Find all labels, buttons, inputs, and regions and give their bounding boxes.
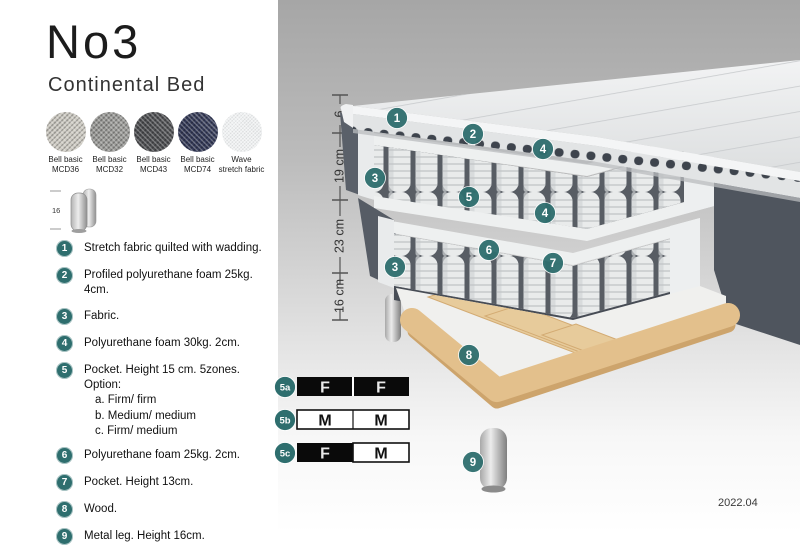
legend-number-badge: 1 [56,240,73,257]
version-date: 2022.04 [718,497,758,509]
marker-4b: 4 [535,203,556,224]
legend-number-badge: 9 [56,528,73,545]
firmness-value: F [320,446,330,463]
firmness-value: M [374,413,387,430]
svg-text:2: 2 [470,129,476,141]
fabric-swatch: Bell basicMCD74 [177,112,218,174]
svg-text:8: 8 [466,350,473,362]
middle-frame-left-post [358,128,374,200]
swatch-label-line1: Bell basic [92,155,126,164]
firmness-table: 5a F F 5b M M 5c [275,377,410,464]
swatch-label-line2: MCD36 [52,165,79,174]
swatch-label-line1: Bell basic [136,155,170,164]
firmness-value: F [376,380,386,397]
legend-text: Polyurethane foam 25kg. 2cm. [84,447,240,463]
marker-2: 2 [463,124,484,145]
svg-text:4: 4 [542,208,549,220]
firmness-row-5c: 5c F M [275,443,410,464]
swatch-label-line1: Wave [231,155,251,164]
component-legend: 1 Stretch fabric quilted with wadding. 2… [56,240,271,555]
firmness-value: M [318,413,331,430]
leg-height-icon: 16 [44,184,114,236]
legend-number-badge: 8 [56,501,73,518]
bed-cutaway-illustration: 6 19 cm 23 cm 16 cm [278,0,800,533]
swatch-label-line1: Bell basic [180,155,214,164]
marker-1: 1 [387,108,408,129]
legend-option-c: c. Firm/ medium [95,425,271,439]
fabric-swatch: Bell basicMCD32 [89,112,130,174]
fabric-swatch-circle [178,112,218,152]
legend-item-8: 8 Wood. [56,501,271,518]
swatch-label-line2: MCD74 [184,165,211,174]
firmness-row-id: 5b [279,416,290,427]
firmness-row-5b: 5b M M [275,410,410,431]
legend-item-1: 1 Stretch fabric quilted with wadding. [56,240,271,257]
dim-lower-layer: 23 cm [332,219,346,253]
fabric-swatch: Bell basicMCD43 [133,112,174,174]
bed-cutaway-panel: 6 19 cm 23 cm 16 cm [278,0,800,533]
svg-text:1: 1 [394,113,401,125]
legend-number-badge: 5 [56,362,73,379]
legend-number-badge: 4 [56,335,73,352]
legend-option-b: b. Medium/ medium [95,410,271,424]
legend-number-badge: 7 [56,474,73,491]
leg-base [72,229,87,233]
fabric-swatch-circle [134,112,174,152]
legend-text: Wood. [84,501,117,517]
leg-height-value: 16 [52,206,60,215]
legend-text: Stretch fabric quilted with wadding. [84,240,262,256]
fabric-swatch-circle [222,112,262,152]
spec-sheet: No3 Continental Bed Bell basicMCD36 Bell… [0,0,800,533]
svg-text:9: 9 [470,457,476,469]
fabric-swatch-row: Bell basicMCD36 Bell basicMCD32 Bell bas… [45,112,262,174]
swatch-label-line2: stretch fabric [219,165,265,174]
legend-item-2: 2 Profiled polyurethane foam 25kg. 4cm. [56,267,271,298]
firmness-value: F [320,380,330,397]
fabric-swatch: Wavestretch fabric [221,112,262,174]
legend-item-5: 5 Pocket. Height 15 cm. 5zones. Option: [56,362,271,393]
legend-item-7: 7 Pocket. Height 13cm. [56,474,271,491]
fabric-swatch: Bell basicMCD36 [45,112,86,174]
marker-9: 9 [463,452,484,473]
legend-text: Pocket. Height 13cm. [84,474,193,490]
svg-text:7: 7 [550,258,556,270]
svg-text:3: 3 [372,173,378,185]
marker-3a: 3 [365,168,386,189]
swatch-label-line2: MCD43 [140,165,167,174]
metal-leg-front [480,428,507,490]
marker-5: 5 [459,187,480,208]
legend-item-9: 9 Metal leg. Height 16cm. [56,528,271,545]
legend-item-6: 6 Polyurethane foam 25kg. 2cm. [56,447,271,464]
page-title: No3 [46,14,141,69]
legend-number-badge: 2 [56,267,73,284]
firmness-value: M [374,446,387,463]
marker-4a: 4 [533,139,554,160]
legend-item-3: 3 Fabric. [56,308,271,325]
marker-7: 7 [543,253,564,274]
legend-number-badge: 6 [56,447,73,464]
legend-text: Pocket. Height 15 cm. 5zones. Option: [84,362,271,393]
swatch-label-line2: MCD32 [96,165,123,174]
svg-text:5: 5 [466,192,473,204]
svg-text:3: 3 [392,262,398,274]
marker-8: 8 [459,345,480,366]
legend-number-badge: 3 [56,308,73,325]
metal-leg-left [385,294,401,342]
legend-text: Fabric. [84,308,119,324]
svg-text:4: 4 [540,144,547,156]
legend-option-a: a. Firm/ firm [95,394,271,408]
dim-leg-height: 16 cm [332,279,346,313]
metal-leg-front [71,193,87,231]
svg-text:6: 6 [486,245,492,257]
legend-item-4: 4 Polyurethane foam 30kg. 2cm. [56,335,271,352]
marker-6: 6 [479,240,500,261]
fabric-swatch-circle [46,112,86,152]
firmness-row-id: 5c [280,449,291,460]
legend-text: Profiled polyurethane foam 25kg. 4cm. [84,267,271,298]
legend-text: Polyurethane foam 30kg. 2cm. [84,335,240,351]
firmness-row-5a: 5a F F [275,377,410,398]
swatch-label-line1: Bell basic [48,155,82,164]
firmness-row-id: 5a [280,383,291,394]
legend-text: Metal leg. Height 16cm. [84,528,205,544]
marker-3b: 3 [385,257,406,278]
leg-foot [482,486,506,493]
page-subtitle: Continental Bed [48,74,205,97]
info-panel: No3 Continental Bed Bell basicMCD36 Bell… [0,0,278,533]
fabric-swatch-circle [90,112,130,152]
